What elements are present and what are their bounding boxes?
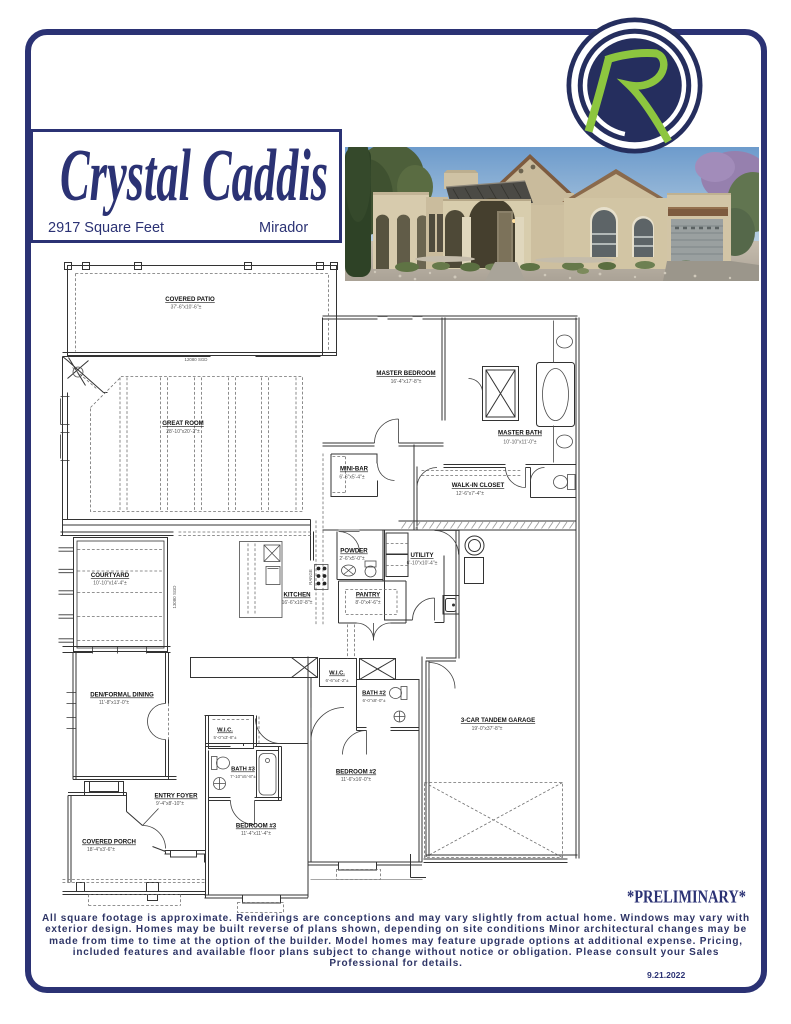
svg-text:BEDROOM #2: BEDROOM #2 — [336, 769, 377, 776]
svg-text:DEN/FORMAL DINING: DEN/FORMAL DINING — [90, 692, 154, 699]
svg-text:10'-10"x11'-0"±: 10'-10"x11'-0"± — [503, 440, 536, 446]
svg-text:MINI-BAR: MINI-BAR — [340, 466, 369, 473]
svg-text:8'-0"x4'-6"±: 8'-0"x4'-6"± — [355, 600, 380, 606]
svg-text:BEDROOM #3: BEDROOM #3 — [236, 823, 277, 830]
svg-text:WALK-IN CLOSET: WALK-IN CLOSET — [452, 482, 505, 489]
svg-text:RANGE: RANGE — [308, 569, 313, 585]
svg-text:5'-0"x3'-8"±: 5'-0"x3'-8"± — [213, 735, 237, 740]
svg-text:BATH #2: BATH #2 — [362, 691, 386, 697]
svg-text:12080 SGD: 12080 SGD — [185, 357, 208, 362]
svg-text:*PRELIMINARY*: *PRELIMINARY* — [627, 887, 746, 907]
svg-text:PANTRY: PANTRY — [356, 592, 380, 599]
svg-text:COVERED PATIO: COVERED PATIO — [165, 296, 215, 303]
svg-text:13080 SGD: 13080 SGD — [172, 586, 177, 609]
svg-text:6'-0"x8'-0"±: 6'-0"x8'-0"± — [362, 698, 386, 703]
svg-text:6'-6"x4'-2"±: 6'-6"x4'-2"± — [325, 678, 349, 683]
svg-text:W.I.C.: W.I.C. — [329, 671, 345, 677]
svg-text:10'-10"x14'-4"±: 10'-10"x14'-4"± — [93, 581, 127, 587]
svg-text:11'-4"x11'-4"±: 11'-4"x11'-4"± — [241, 831, 271, 837]
svg-text:37'-6"x10'-6"±: 37'-6"x10'-6"± — [171, 305, 202, 311]
svg-text:BATH #3: BATH #3 — [231, 767, 256, 773]
svg-text:18'-4"x3'-6"±: 18'-4"x3'-6"± — [87, 847, 115, 853]
svg-text:11'-6"x16'-0"±: 11'-6"x16'-0"± — [341, 777, 372, 783]
svg-text:28'-10"x20'-2"±: 28'-10"x20'-2"± — [166, 429, 200, 435]
svg-text:COURTYARD: COURTYARD — [91, 572, 130, 579]
svg-text:GREAT ROOM: GREAT ROOM — [162, 420, 204, 427]
svg-text:7'-10"x5'-8"±: 7'-10"x5'-8"± — [230, 774, 256, 779]
svg-text:16'-4"x17'-8"±: 16'-4"x17'-8"± — [391, 379, 422, 385]
svg-text:MASTER BEDROOM: MASTER BEDROOM — [376, 370, 435, 377]
svg-text:12'-6"x7'-4"±: 12'-6"x7'-4"± — [456, 491, 484, 497]
svg-text:POWDER: POWDER — [340, 548, 368, 555]
svg-text:COVERED PORCH: COVERED PORCH — [82, 839, 136, 846]
svg-text:2'-6"x5'-0"±: 2'-6"x5'-0"± — [339, 556, 364, 562]
svg-text:11'-8"x13'-0"±: 11'-8"x13'-0"± — [99, 700, 130, 706]
svg-text:ENTRY FOYER: ENTRY FOYER — [154, 793, 198, 800]
svg-text:9'-4"x8'-10"±: 9'-4"x8'-10"± — [156, 801, 184, 807]
svg-text:KITCHEN: KITCHEN — [283, 592, 310, 599]
svg-text:6'-10"x10'-4"±: 6'-10"x10'-4"± — [407, 561, 438, 567]
svg-text:6'-6"x5'-4"±: 6'-6"x5'-4"± — [339, 475, 364, 481]
svg-text:MASTER BATH: MASTER BATH — [498, 430, 542, 437]
svg-text:3-CAR TANDEM GARAGE: 3-CAR TANDEM GARAGE — [461, 717, 535, 724]
svg-text:UTILITY: UTILITY — [410, 552, 433, 559]
svg-text:19'-0"x37'-8"±: 19'-0"x37'-8"± — [472, 726, 503, 732]
svg-text:W.I.C.: W.I.C. — [217, 728, 233, 734]
svg-text:16'-6"x10'-8"±: 16'-6"x10'-8"± — [282, 600, 313, 606]
